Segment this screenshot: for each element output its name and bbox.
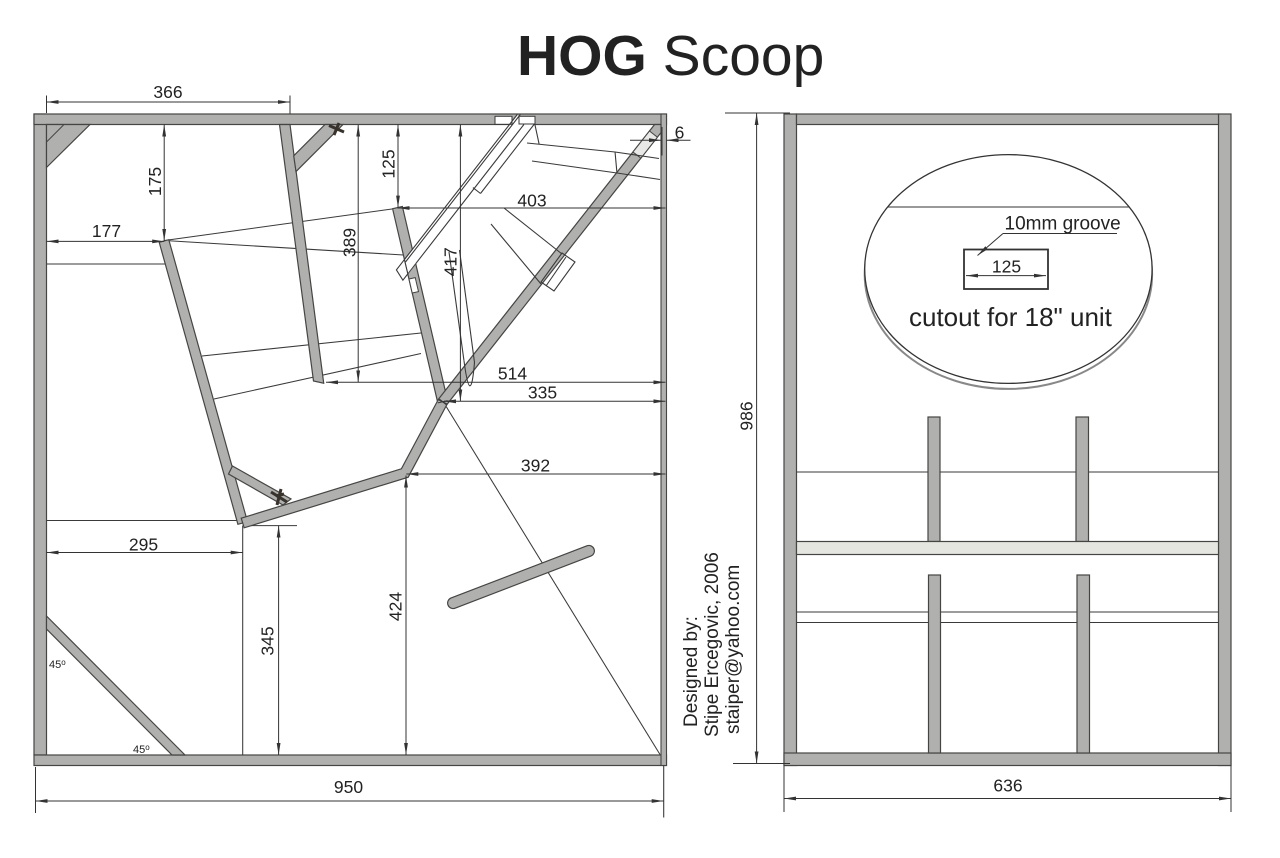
svg-text:6: 6 [675,123,685,143]
svg-text:417: 417 [441,247,461,276]
svg-text:345: 345 [258,626,278,655]
svg-text:424: 424 [386,592,406,621]
svg-text:177: 177 [92,221,121,241]
svg-text:cutout for 18" unit: cutout for 18" unit [909,302,1113,332]
svg-text:125: 125 [379,149,399,178]
svg-text:295: 295 [129,535,158,555]
svg-text:389: 389 [340,228,360,257]
svg-text:403: 403 [517,191,546,211]
svg-text:950: 950 [334,777,363,797]
svg-text:392: 392 [521,456,550,476]
svg-text:Stipe Ercegovic, 2006: Stipe Ercegovic, 2006 [702,552,723,737]
svg-text:Designed by:: Designed by: [681,616,702,727]
svg-text:175: 175 [145,167,165,196]
svg-text:staiper@yahoo.com: staiper@yahoo.com [723,565,744,734]
svg-text:335: 335 [528,383,557,403]
svg-text:10mm groove: 10mm groove [1005,214,1121,235]
svg-text:636: 636 [993,776,1022,796]
svg-text:HOG Scoop: HOG Scoop [517,24,824,88]
svg-text:125: 125 [992,257,1021,277]
svg-text:986: 986 [737,401,757,430]
svg-text:366: 366 [153,82,182,102]
svg-text:514: 514 [498,364,527,384]
